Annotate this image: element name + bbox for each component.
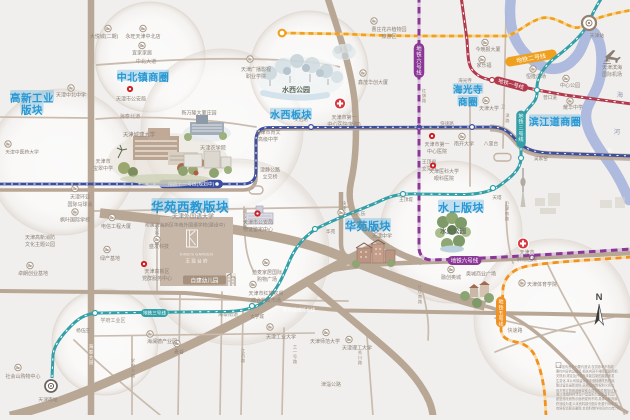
svg-text:大学城: 大学城 <box>250 313 264 320</box>
svg-text:天津医科大学: 天津医科大学 <box>429 168 459 175</box>
svg-text:津淄公路: 津淄公路 <box>321 381 341 388</box>
svg-text:天津理工大学: 天津理工大学 <box>342 345 372 352</box>
svg-text:盛发科技: 盛发科技 <box>149 243 169 250</box>
svg-text:河: 河 <box>614 128 620 136</box>
svg-text:天津中学: 天津中学 <box>372 233 392 240</box>
svg-text:六: 六 <box>416 57 422 65</box>
svg-text:综合批发市场: 综合批发市场 <box>251 297 281 304</box>
svg-text:宝翠中学: 宝翠中学 <box>93 165 113 172</box>
svg-text:要约内容的证据是,相关内容不排除因政府相: 要约内容的证据是,相关内容不排除因政府相 <box>556 369 617 374</box>
svg-text:鑫茂华创大厦: 鑫茂华创大厦 <box>358 79 388 86</box>
svg-text:物证鉴定中心: 物证鉴定中心 <box>243 226 273 233</box>
svg-text:铁: 铁 <box>518 118 523 126</box>
svg-text:海澜德产业园: 海澜德产业园 <box>147 338 177 345</box>
svg-text:中北镇商圈: 中北镇商圈 <box>117 71 170 84</box>
svg-text:枫叶国际学校: 枫叶国际学校 <box>60 217 90 224</box>
svg-text:准;2.本资料所涉及户型面积为建筑面积,因: 准;2.本资料所涉及户型面积为建筑面积,因 <box>556 392 615 397</box>
svg-text:天津体育学院: 天津体育学院 <box>527 281 557 288</box>
svg-text:家乐福: 家乐福 <box>476 62 491 69</box>
svg-text:线: 线 <box>518 135 523 143</box>
svg-text:津静公路: 津静公路 <box>260 167 280 174</box>
svg-text:海光寺: 海光寺 <box>458 77 472 84</box>
svg-text:旅游区: 旅游区 <box>381 33 396 40</box>
svg-text:天津大学: 天津大学 <box>479 105 499 112</box>
svg-text:学府工业区: 学府工业区 <box>100 317 125 324</box>
svg-text:国际马球会: 国际马球会 <box>67 201 92 208</box>
svg-text:生变化,本公司保留对宣传资料修改的权利,: 生变化,本公司保留对宣传资料修改的权利, <box>556 378 615 383</box>
svg-text:快速路: 快速路 <box>507 327 522 334</box>
svg-text:线: 线 <box>498 321 503 328</box>
svg-text:天津工业大学: 天津工业大学 <box>266 334 296 341</box>
svg-text:滨江道商圈: 滨江道商圈 <box>529 115 582 128</box>
svg-text:水西板块: 水西板块 <box>269 109 312 122</box>
svg-text:天津市: 天津市 <box>95 158 110 165</box>
svg-text:人人乐: 人人乐 <box>350 211 365 218</box>
svg-text:中北大道: 中北大道 <box>136 57 157 65</box>
svg-text:天津广播影视: 天津广播影视 <box>241 66 271 73</box>
svg-text:天津市第一: 天津市第一 <box>331 114 356 121</box>
svg-text:天塔: 天塔 <box>492 194 502 201</box>
svg-text:大悦城(二期): 大悦城(二期) <box>90 33 119 40</box>
svg-text:职业学院: 职业学院 <box>246 73 266 80</box>
svg-text:电信工程大厦: 电信工程大厦 <box>101 223 131 230</box>
svg-text:杨伍庄: 杨伍庄 <box>76 327 90 334</box>
svg-text:1.本宣传资料为要约邀请,仅供参考不构成: 1.本宣传资料为要约邀请,仅供参考不构成 <box>556 364 615 369</box>
svg-text:华苑西教版块: 华苑西教版块 <box>151 200 229 215</box>
svg-text:KING'S GARDEN: KING'S GARDEN <box>180 253 213 257</box>
svg-text:天津高新区: 天津高新区 <box>144 268 169 275</box>
svg-text:天津中医药大学: 天津中医药大学 <box>5 149 39 156</box>
svg-text:天津市第一: 天津市第一 <box>424 141 449 148</box>
svg-text:耀华中学: 耀华中学 <box>563 104 583 111</box>
svg-text:奥城商业广场: 奥城商业广场 <box>466 271 496 278</box>
svg-text:购物广场: 购物广场 <box>257 276 277 283</box>
svg-text:麦谷: 麦谷 <box>174 349 184 356</box>
svg-text:永旺天津中北店: 永旺天津中北店 <box>125 33 160 40</box>
svg-text:王顶堤: 王顶堤 <box>399 196 413 203</box>
svg-text:玉 珑 台 府: 玉 珑 台 府 <box>185 258 208 265</box>
svg-text:海泰北道: 海泰北道 <box>120 112 141 120</box>
svg-text:N: N <box>596 292 603 303</box>
svg-text:天津农学院: 天津农学院 <box>200 144 227 152</box>
svg-text:天津高新消防: 天津高新消防 <box>25 234 55 241</box>
svg-text:天津站: 天津站 <box>590 32 605 39</box>
svg-text:天津市: 天津市 <box>519 249 534 256</box>
svg-text:套型修改而所示面积或有不同,具体以政府最: 套型修改而所示面积或有不同,具体以政府最 <box>556 396 618 401</box>
svg-text:眼科医院: 眼科医院 <box>434 175 454 182</box>
svg-text:营口道: 营口道 <box>543 94 557 101</box>
svg-text:天津城建大学: 天津城建大学 <box>123 131 156 139</box>
svg-text:附属滨海新区华苑外国语学校(建设中): 附属滨海新区华苑外国语学校(建设中) <box>145 222 225 229</box>
svg-text:天津市育文: 天津市育文 <box>255 129 280 136</box>
svg-text:文化主题公园: 文化主题公园 <box>25 241 55 248</box>
svg-text:线: 线 <box>416 69 422 77</box>
svg-text:曹庄花卉植物园: 曹庄花卉植物园 <box>371 26 406 33</box>
svg-text:卫: 卫 <box>501 104 505 109</box>
svg-text:宜家家居: 宜家家居 <box>132 50 152 57</box>
svg-text:天津市公安局: 天津市公安局 <box>243 219 273 226</box>
svg-text:号: 号 <box>416 64 422 71</box>
svg-text:绿产基地: 绿产基地 <box>100 255 120 262</box>
svg-text:社会山购物中心: 社会山购物中心 <box>5 373 40 380</box>
svg-text:天津滨海: 天津滨海 <box>602 64 622 71</box>
svg-text:肿瘤医院: 肿瘤医院 <box>517 256 537 263</box>
svg-text:卓朗创业基地: 卓朗创业基地 <box>18 270 48 277</box>
svg-text:天津南站: 天津南站 <box>38 396 57 403</box>
svg-text:华苑: 华苑 <box>326 228 336 235</box>
svg-text:南开大学: 南开大学 <box>454 141 474 148</box>
svg-text:中心医院: 中心医院 <box>427 148 447 155</box>
svg-text:关规划,规定及开发商未能控制的原因而发: 关规划,规定及开发商未能控制的原因而发 <box>556 373 615 378</box>
svg-text:宾水西道延长线: 宾水西道延长线 <box>283 307 316 314</box>
svg-text:敬请留意最新资料,买卖双方的权利义务以: 敬请留意最新资料,买卖双方的权利义务以 <box>556 382 615 387</box>
svg-text:铁: 铁 <box>416 51 422 59</box>
svg-text:中心医院(新院): 中心医院(新院) <box>327 121 361 128</box>
svg-text:今晚报大厦: 今晚报大厦 <box>475 46 500 53</box>
svg-text:自建幼儿园: 自建幼儿园 <box>191 277 219 285</box>
svg-text:党群服务中心: 党群服务中心 <box>142 275 172 282</box>
svg-text:八里台: 八里台 <box>484 140 499 147</box>
svg-text:迪麦家居国际: 迪麦家居国际 <box>252 269 282 276</box>
svg-text:商圈: 商圈 <box>458 96 478 108</box>
svg-text:中心公园: 中心公园 <box>560 82 580 89</box>
svg-text:水西公园: 水西公园 <box>282 85 310 94</box>
svg-text:水上版块: 水上版块 <box>438 200 484 214</box>
svg-text:新万隆大厦庄园: 新万隆大厦庄园 <box>181 110 216 117</box>
svg-text:终测绘为准;3.本资料部分图片来源于网络,如: 终测绘为准;3.本资料部分图片来源于网络,如 <box>556 401 618 406</box>
svg-text:立交桥: 立交桥 <box>262 174 277 181</box>
svg-text:版块: 版块 <box>21 103 43 116</box>
svg-text:地: 地 <box>518 112 523 120</box>
svg-text:吴家窑: 吴家窑 <box>534 155 548 162</box>
svg-text:融创奥城: 融创奥城 <box>441 274 461 281</box>
svg-text:恒隆广场: 恒隆广场 <box>526 73 546 80</box>
svg-text:天津市公安局: 天津市公安局 <box>116 96 146 103</box>
svg-text:天津中北中学: 天津中北中学 <box>56 92 86 99</box>
svg-text:地: 地 <box>416 45 422 53</box>
svg-text:泰: 泰 <box>89 348 94 354</box>
svg-text:水上公园: 水上公园 <box>440 226 467 235</box>
svg-text:天津师范大学: 天津师范大学 <box>310 338 340 345</box>
svg-text:地铁六号线: 地铁六号线 <box>451 256 479 264</box>
svg-text:华苑版块: 华苑版块 <box>345 219 391 233</box>
svg-text:天津市红旗农贸: 天津市红旗农贸 <box>248 290 283 297</box>
svg-text:海: 海 <box>617 91 623 99</box>
svg-text:地铁三号线: 地铁三号线 <box>143 310 166 317</box>
svg-text:天津环亚: 天津环亚 <box>70 194 90 201</box>
svg-text:高级中学: 高级中学 <box>258 136 278 143</box>
svg-text:国际机场: 国际机场 <box>602 71 622 78</box>
svg-text:道: 道 <box>89 359 94 366</box>
svg-text:有侵权请联系删除,本资料制作时间2023年7月。: 有侵权请联系删除,本资料制作时间2023年7月。 <box>556 405 623 410</box>
svg-text:海光寺: 海光寺 <box>453 84 483 96</box>
